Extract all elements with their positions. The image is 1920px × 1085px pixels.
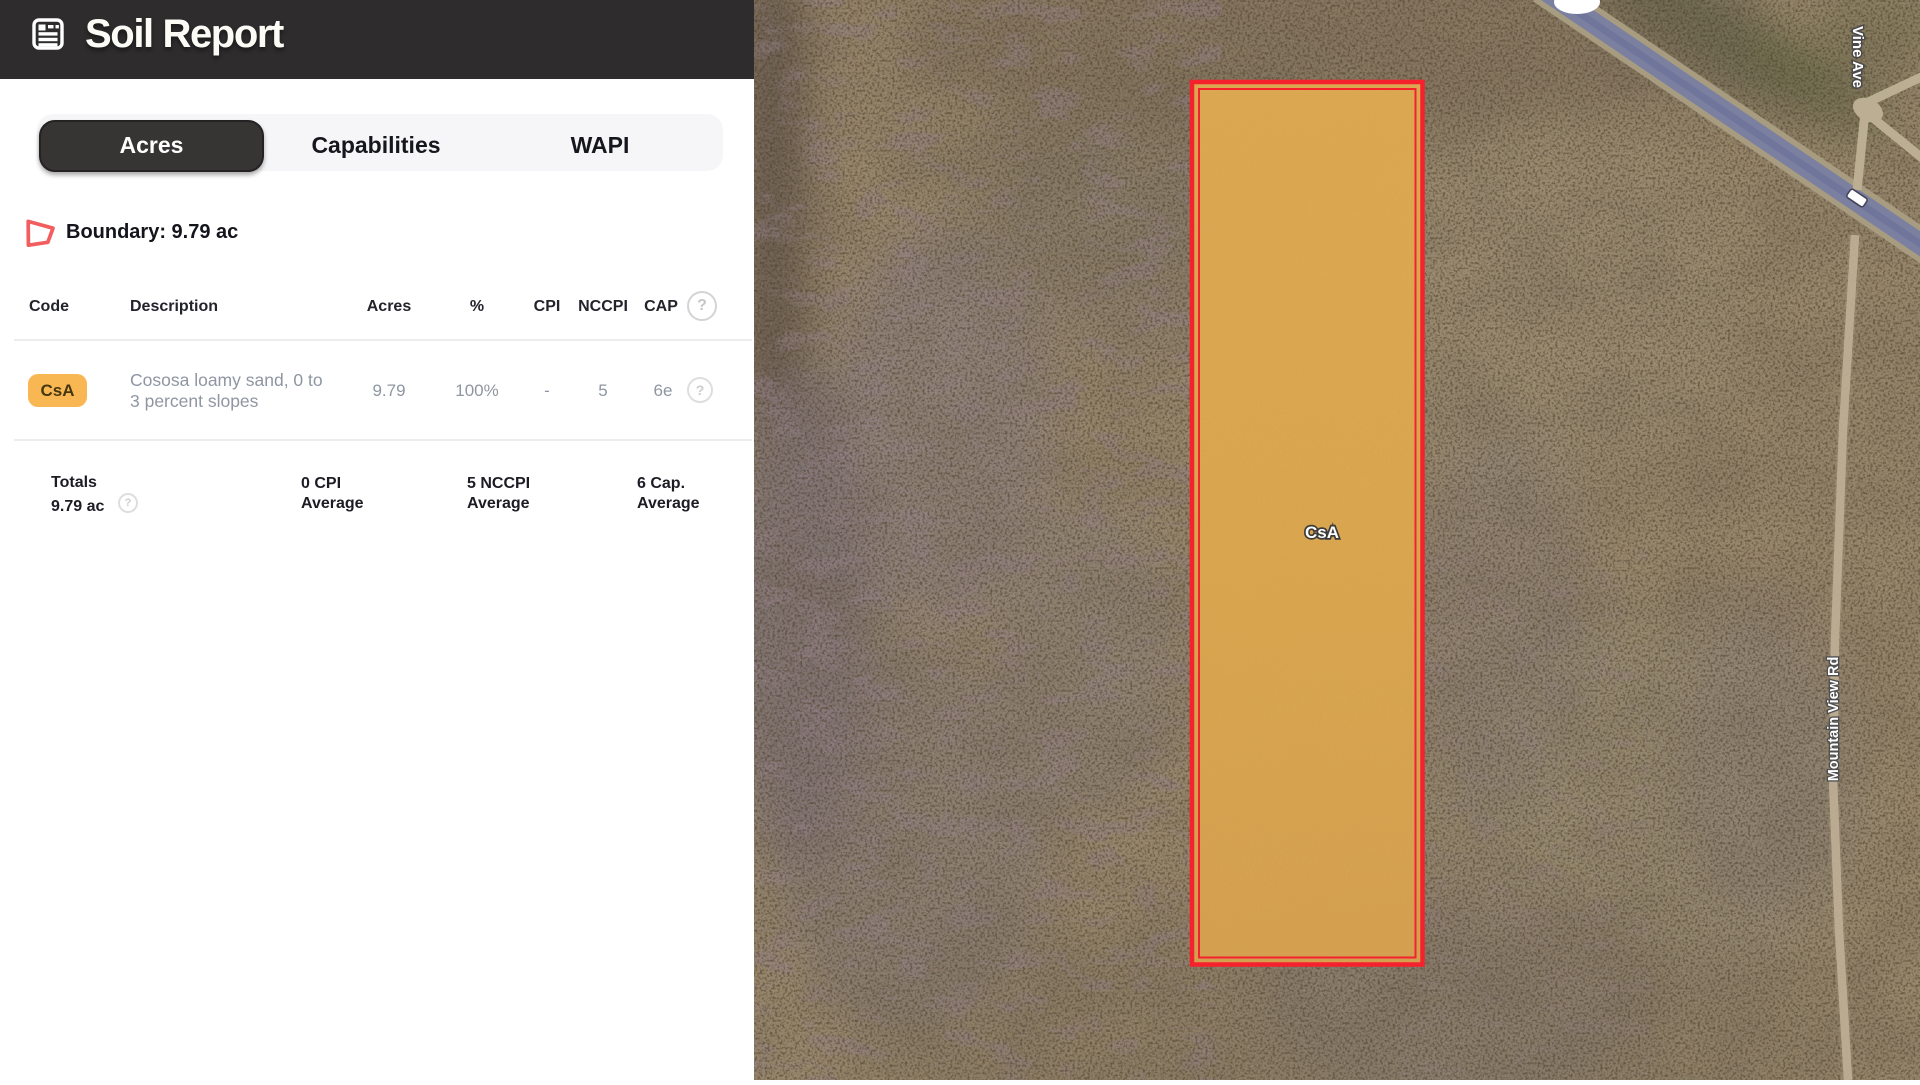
- svg-text:Vine Ave: Vine Ave: [1849, 26, 1866, 88]
- svg-text:Mountain View Rd: Mountain View Rd: [1826, 657, 1842, 782]
- svg-text:CsA: CsA: [1305, 523, 1339, 542]
